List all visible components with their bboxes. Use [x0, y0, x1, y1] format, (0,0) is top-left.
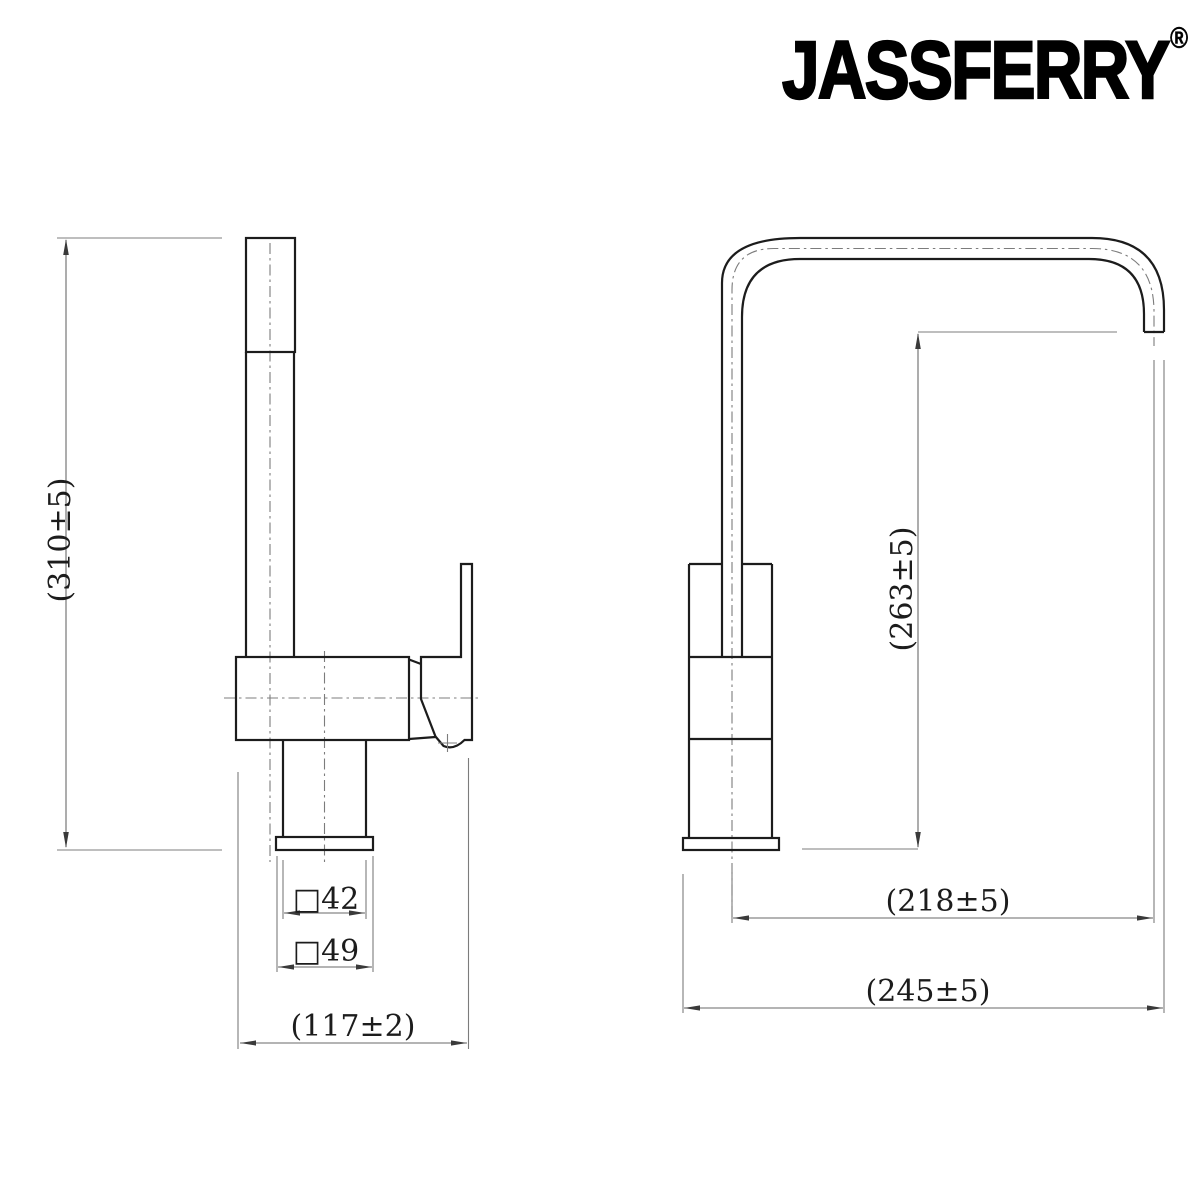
dimension-label-overall-height: (310±5): [43, 478, 78, 603]
dimension-label-depth: (117±2): [291, 1009, 416, 1044]
dimension-outlet-height: (263±5): [802, 332, 1117, 849]
arrowhead-down-icon: [915, 832, 921, 848]
dimension-label-flange-square: □49: [293, 934, 360, 969]
arrowhead-left-icon: [684, 1005, 700, 1010]
front-view-dimensions: (263±5) (218±5) (245±5): [683, 332, 1164, 1013]
dimension-label-outlet-height: (263±5): [885, 527, 920, 652]
handle-pivot-cross-icon: [438, 734, 457, 752]
arrowhead-left-icon: [240, 1040, 256, 1045]
handle-joint-upper-edge: [409, 660, 421, 665]
arrowhead-right-icon: [1147, 1005, 1163, 1010]
dimension-label-spout-reach: (218±5): [886, 884, 1011, 919]
spout-tube-inner-edge: [742, 259, 1144, 657]
handle-joint-lower-edge: [409, 737, 436, 739]
arrowhead-down-icon: [63, 832, 69, 848]
side-view-centerlines: [224, 243, 478, 866]
arrowhead-up-icon: [63, 239, 69, 255]
handle-lever-outline: [421, 564, 472, 747]
base-flange-outline: [683, 838, 779, 850]
spout-tube-outer-edge: [722, 238, 1164, 657]
dimension-label-overall-width: (245±5): [866, 974, 991, 1009]
side-view: [224, 238, 478, 866]
arrowhead-left-icon: [733, 915, 749, 920]
arrowhead-up-icon: [915, 333, 921, 349]
handle-lever: [409, 564, 472, 752]
dimension-base-square: □42: [283, 860, 366, 919]
front-view: [683, 238, 1164, 917]
drawing-page: JASSFERRY ®: [0, 0, 1200, 1200]
side-view-dimensions: (310±5) □42 □49: [43, 238, 469, 1049]
arrowhead-right-icon: [1137, 915, 1153, 920]
dimension-overall-height: (310±5): [43, 238, 222, 850]
spout-tube-centerline: [732, 249, 1154, 918]
arrowhead-left-icon: [278, 964, 294, 969]
arrowhead-right-icon: [451, 1040, 467, 1045]
dimension-spout-reach: (218±5): [732, 360, 1154, 923]
dimension-label-base-square: □42: [293, 882, 360, 917]
technical-drawing-canvas: (310±5) □42 □49: [0, 0, 1200, 1200]
